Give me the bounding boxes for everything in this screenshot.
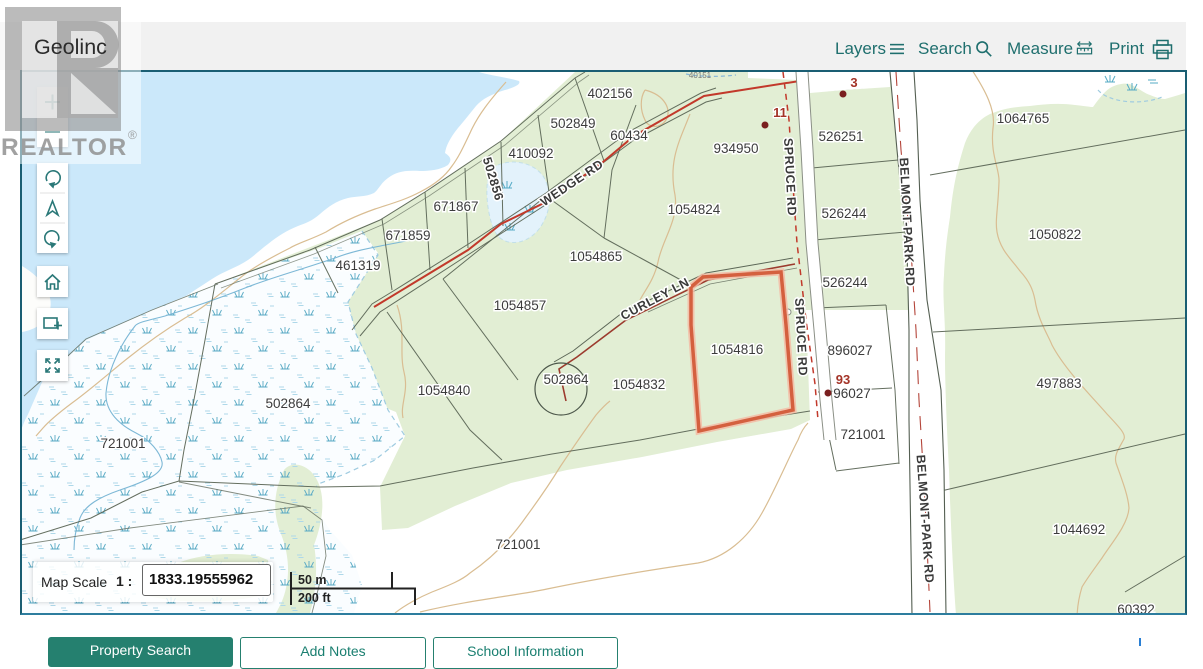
svg-text:96027: 96027 [833, 386, 871, 401]
svg-text:402156: 402156 [587, 86, 632, 101]
svg-text:526244: 526244 [821, 206, 867, 221]
svg-text:93: 93 [836, 372, 850, 387]
svg-text:1064765: 1064765 [997, 111, 1050, 126]
svg-text:40151: 40151 [689, 72, 712, 80]
svg-text:502864: 502864 [265, 396, 311, 411]
svg-text:502864: 502864 [543, 372, 589, 387]
svg-text:®: ® [128, 128, 137, 142]
svg-text:502849: 502849 [550, 116, 595, 131]
svg-text:60392: 60392 [1117, 602, 1155, 613]
svg-text:1054857: 1054857 [494, 298, 547, 313]
svg-text:1054816: 1054816 [711, 342, 764, 357]
svg-text:1054824: 1054824 [668, 202, 721, 217]
svg-text:1044692: 1044692 [1053, 522, 1106, 537]
svg-text:1054832: 1054832 [613, 377, 666, 392]
svg-text:60434: 60434 [610, 128, 648, 143]
svg-text:11: 11 [773, 105, 787, 120]
svg-text:3: 3 [850, 75, 857, 90]
svg-text:1054840: 1054840 [418, 383, 471, 398]
svg-text:461319: 461319 [335, 258, 380, 273]
svg-text:896027: 896027 [827, 343, 872, 358]
svg-text:671867: 671867 [433, 199, 478, 214]
svg-text:721001: 721001 [495, 537, 540, 552]
svg-text:1050822: 1050822 [1029, 227, 1082, 242]
svg-text:1054865: 1054865 [570, 249, 623, 264]
svg-text:410092: 410092 [508, 146, 553, 161]
svg-text:934950: 934950 [713, 141, 758, 156]
svg-text:526251: 526251 [818, 129, 863, 144]
svg-text:REALTOR: REALTOR [1, 134, 128, 161]
svg-text:671859: 671859 [385, 228, 430, 243]
svg-text:721001: 721001 [100, 436, 145, 451]
svg-text:526244: 526244 [822, 275, 868, 290]
svg-text:497883: 497883 [1036, 376, 1081, 391]
svg-text:200 ft: 200 ft [298, 591, 331, 605]
svg-text:50 m: 50 m [298, 573, 327, 587]
svg-text:721001: 721001 [840, 427, 885, 442]
